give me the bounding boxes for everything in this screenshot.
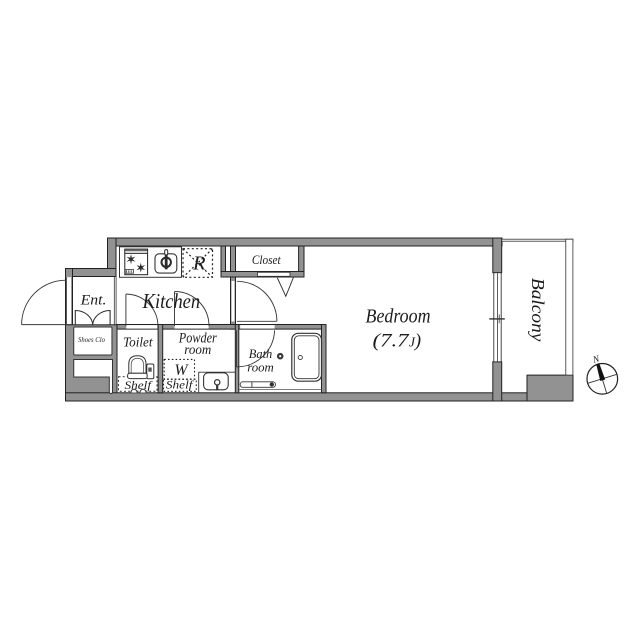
svg-text:(7.7: (7.7 <box>373 330 411 351</box>
svg-text:Kitchen: Kitchen <box>142 289 200 313</box>
svg-text:Ent.: Ent. <box>80 293 107 309</box>
svg-text:Shelf: Shelf <box>166 378 194 392</box>
svg-text:W: W <box>175 362 190 379</box>
svg-text:N: N <box>591 354 601 366</box>
svg-text:Shelf: Shelf <box>125 378 153 392</box>
svg-text:Balcony: Balcony <box>528 278 548 342</box>
svg-text:Toilet: Toilet <box>123 335 154 350</box>
svg-text:Closet: Closet <box>252 253 281 267</box>
svg-text:): ) <box>414 330 421 351</box>
svg-text:room: room <box>184 342 211 357</box>
svg-text:Bedroom: Bedroom <box>366 306 431 328</box>
svg-text:room: room <box>247 359 274 374</box>
svg-text:R: R <box>192 253 206 275</box>
svg-text:Shoes Clo: Shoes Clo <box>78 335 105 344</box>
